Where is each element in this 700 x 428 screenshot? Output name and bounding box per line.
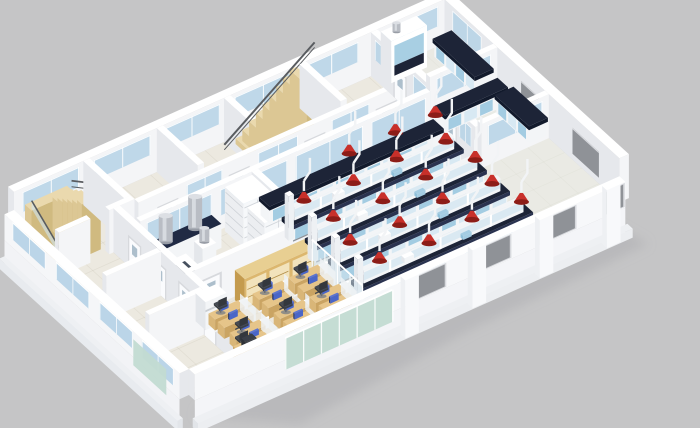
extract-duct-2 (188, 194, 202, 231)
extract-duct-1 (159, 213, 173, 244)
extract-duct-3 (199, 226, 209, 244)
lab-floorplan-render (0, 0, 700, 428)
scene-svg (0, 0, 700, 428)
